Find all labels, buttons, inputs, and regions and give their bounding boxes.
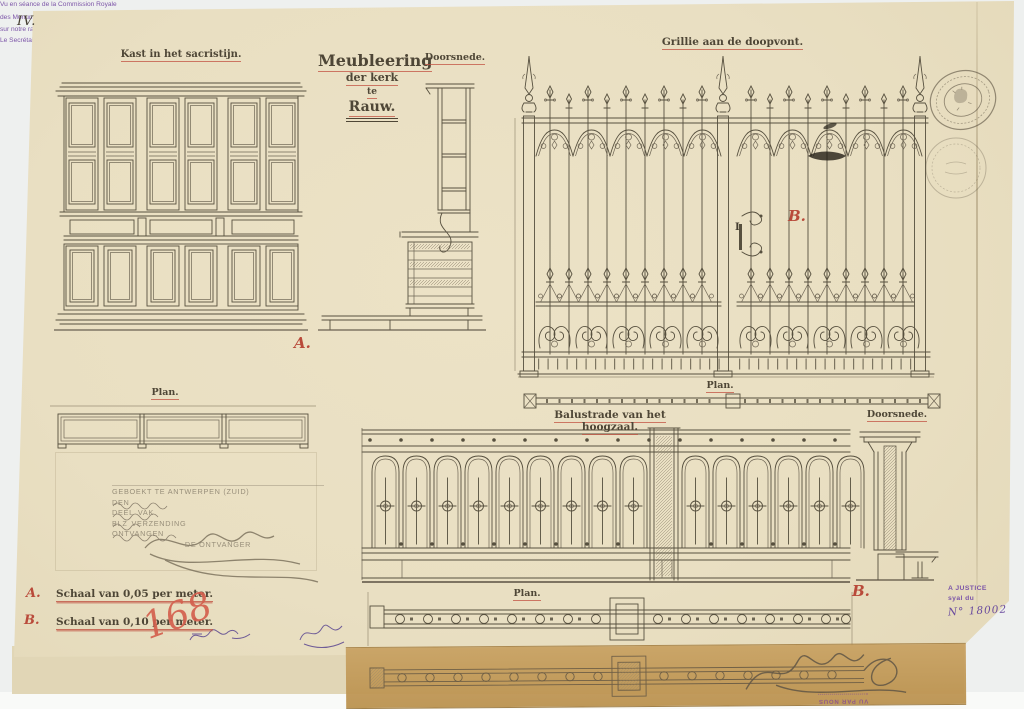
justice-number: N° 18002 [948, 602, 1008, 620]
main-title-line2: der kerk [346, 71, 398, 86]
scanned-architectural-drawing: { "page": { "number": "IV.", "colors": {… [0, 0, 1024, 709]
cabinet-plan-title-text: Plan. [151, 387, 178, 400]
pencil-signature [746, 653, 906, 693]
justice-line1: A JUSTICE [948, 584, 1007, 594]
main-title-line4: Rauw. [349, 99, 396, 117]
scale-mark-a: A. [294, 334, 311, 352]
sheet-number: IV. [17, 14, 36, 29]
grille-left-post [522, 56, 536, 371]
cabinet-elevation-drawing [50, 80, 312, 334]
grille-plan-title-text: Plan. [706, 380, 733, 393]
cabinet-plan-drawing [50, 404, 316, 456]
balustrade-section-title-text: Doorsnede. [867, 409, 927, 422]
grille-plan-title: Plan. [695, 380, 745, 391]
grille-title-text: Grillie aan de doopvont. [662, 36, 803, 50]
cabinet-section-title-text: Doorsnede. [425, 52, 485, 65]
legend-letter-a: A. [26, 586, 41, 601]
balustrade-section-drawing [850, 420, 942, 592]
balustrade-plan-title: Plan. [502, 588, 552, 599]
balustrade-plan-drawing [358, 592, 862, 646]
cabinet-title-text: Kast in het sacristijn. [121, 49, 242, 62]
commission-line1: Vu en séance de la Commission Royale [0, 0, 162, 11]
main-title-line3: te [367, 87, 377, 99]
balustrade-plan-title-text: Plan. [513, 588, 540, 601]
cabinet-title: Kast in het sacristijn. [120, 49, 242, 60]
main-title-line1: Meubleering [318, 51, 432, 72]
balustrade-title-text: Balustrade van het hoogzaal. [554, 409, 665, 435]
legend-letter-b: B. [24, 613, 40, 628]
balustrade-section-title: Doorsnede. [862, 409, 932, 420]
balustrade-title: Balustrade van het hoogzaal. [530, 409, 690, 433]
cabinet-plan-title: Plan. [135, 387, 195, 398]
handwritten-entry [112, 511, 168, 519]
handwritten-entry [112, 500, 182, 508]
secretary-signature [188, 626, 278, 654]
drawing-main-title: Meubleering der kerk te Rauw. [318, 52, 426, 122]
embossed-round-stamps [918, 60, 1024, 200]
grille-center-post [716, 56, 730, 371]
repair-strip: VU PAR NOUS [346, 643, 966, 709]
grille-elevation-drawing [514, 56, 938, 386]
handwritten-entry [112, 532, 192, 540]
cabinet-section-title: Doorsnede. [420, 52, 490, 63]
balustrade-joint-post [648, 428, 680, 580]
balustrade-elevation-drawing [362, 420, 850, 590]
scale-mark-b-grille: B. [788, 207, 806, 225]
grille-title: Grillie aan de doopvont. [660, 36, 805, 48]
registry-line1: GEBOEKT TE ANTWERPEN (ZUID) [112, 485, 324, 498]
repair-strip-plan-drawing [346, 644, 966, 708]
title-underline-rule [346, 118, 398, 122]
handwritten-entry [112, 521, 152, 529]
registry-ontvanger-label: DE ONTVANGER [112, 540, 324, 551]
lion-seal-stamp [923, 62, 1004, 138]
faint-round-stamp [926, 138, 986, 198]
scale-mark-b-balustrade: B. [852, 582, 870, 600]
justice-stamp: A JUSTICE syal du N° 18002 [948, 584, 1007, 619]
registry-stamp: GEBOEKT TE ANTWERPEN (ZUID) DEN DEEL VAK… [112, 485, 324, 550]
grille-door-mark: I [735, 222, 740, 233]
